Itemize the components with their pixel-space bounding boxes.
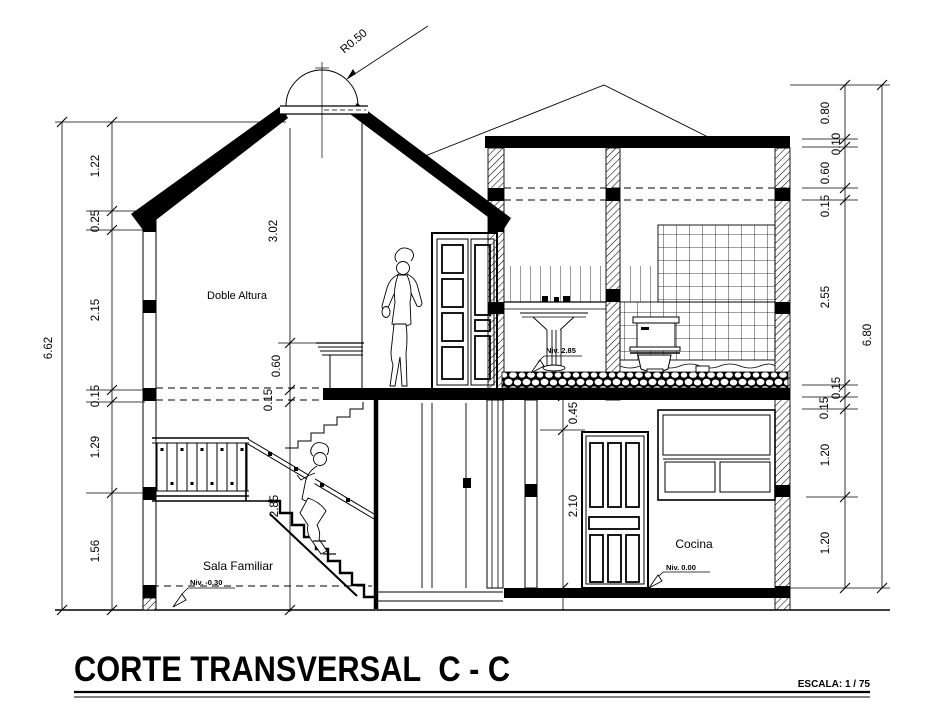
left-wall: [143, 218, 156, 610]
svg-text:1.20: 1.20: [820, 532, 832, 554]
svg-text:1.29: 1.29: [90, 436, 102, 458]
svg-text:0.60: 0.60: [820, 162, 832, 184]
party-wall: [488, 148, 504, 400]
svg-text:1.56: 1.56: [90, 540, 102, 562]
svg-text:0.60: 0.60: [271, 355, 283, 377]
balustrade: [152, 438, 249, 496]
staircase: Sala Familiar: [152, 402, 376, 609]
svg-text:0.15: 0.15: [831, 377, 843, 399]
stair-upper-flight: [285, 402, 363, 448]
svg-text:2.85: 2.85: [269, 495, 281, 517]
svg-text:0.15: 0.15: [263, 389, 275, 411]
kitchen-door: [582, 432, 648, 588]
level-ground-mark: Niv. 0.00: [649, 563, 710, 588]
dimensions-right: 0.80 0.10 0.60 0.15 2.55 0.15 0.15 1.20 …: [790, 80, 890, 593]
open-floor-dashes: [156, 388, 323, 400]
roof-slab: [485, 136, 790, 148]
ridge-band: [280, 106, 368, 114]
svg-text:3.02: 3.02: [268, 220, 280, 242]
svg-text:0.10: 0.10: [831, 133, 843, 155]
balcony-parapet: [316, 114, 364, 388]
svg-text:0.80: 0.80: [820, 102, 832, 124]
svg-text:6.80: 6.80: [862, 324, 874, 346]
level-sala-mark: Niv. -0.30: [152, 578, 372, 607]
washbasin: [504, 296, 606, 371]
kitchen-label: Cocina: [675, 537, 713, 551]
svg-text:2.15: 2.15: [90, 299, 102, 321]
roof-left-slope: [131, 106, 288, 230]
roof-right-slope: [350, 103, 511, 229]
svg-text:2.10: 2.10: [568, 495, 580, 517]
svg-text:Niv. -0.30: Niv. -0.30: [190, 578, 222, 587]
gravel-fill: [502, 372, 788, 388]
ground-slab: [504, 588, 790, 598]
second-floor-slab: [323, 388, 790, 400]
title-block: CORTE TRANSVERSAL C - C ESCALA: 1 / 75: [74, 649, 870, 697]
drawing-scale: ESCALA: 1 / 75: [798, 679, 871, 690]
upper-door-unit: [432, 233, 497, 390]
left-wall-foundation: [143, 598, 156, 610]
dome-radius-leader: R0.50: [338, 26, 428, 79]
dome-radius-label: R0.50: [338, 27, 369, 56]
svg-text:1.20: 1.20: [820, 444, 832, 466]
middle-partition: [375, 400, 503, 609]
family-room-label: Sala Familiar: [203, 559, 273, 573]
kitchen-window: [658, 410, 775, 500]
person-standing: [382, 248, 422, 386]
double-height-label: Doble Altura: [207, 290, 268, 302]
svg-text:1.22: 1.22: [90, 155, 102, 177]
svg-text:0.15: 0.15: [90, 385, 102, 407]
svg-text:Niv. 2.85: Niv. 2.85: [546, 346, 576, 355]
svg-text:2.55: 2.55: [820, 286, 832, 308]
drawing-sheet: R0.50: [0, 0, 940, 728]
svg-text:0.25: 0.25: [90, 210, 102, 232]
bath-middle-wall: [606, 148, 620, 400]
svg-text:6.62: 6.62: [43, 337, 55, 359]
svg-text:0.15: 0.15: [819, 397, 831, 419]
svg-text:0.45: 0.45: [568, 402, 580, 424]
section-drawing: R0.50: [0, 0, 940, 728]
svg-text:0.15: 0.15: [820, 195, 832, 217]
svg-text:Niv. 0.00: Niv. 0.00: [666, 563, 696, 572]
drawing-title: CORTE TRANSVERSAL C - C: [74, 649, 510, 688]
